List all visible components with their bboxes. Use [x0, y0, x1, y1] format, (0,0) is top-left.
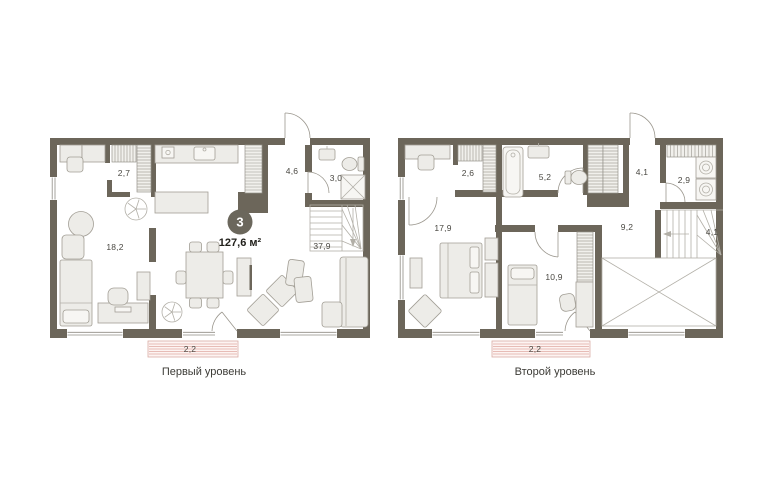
room-label-bedroom-l1: 18,2	[106, 242, 123, 252]
wardrobe-icon	[667, 145, 716, 157]
room-label-bedroom2-l2: 10,9	[545, 272, 562, 282]
toilet-icon	[342, 157, 364, 171]
room-label-hall-l2: 4,1	[636, 167, 648, 177]
bathroom-door-arc	[308, 172, 329, 193]
bed-icon	[508, 265, 537, 325]
bedroom-door-arc	[409, 197, 437, 225]
room-label-bathroom-l1: 3,0	[330, 173, 342, 183]
floor-plan-level-2	[395, 105, 730, 365]
dresser-icon	[410, 258, 422, 288]
level-2-drawing	[395, 105, 730, 365]
double-bed-icon	[440, 243, 482, 298]
balcony-door-arc	[212, 312, 237, 331]
kitchen-island-icon	[155, 192, 208, 213]
sofa-icon	[322, 257, 368, 327]
cabinet-icon	[137, 272, 150, 300]
void-cross-icon	[602, 258, 716, 326]
nightstand-icon	[485, 238, 498, 297]
entrance-door-arc	[630, 113, 655, 138]
entrance-door-arc	[285, 113, 310, 138]
wardrobe-icon	[588, 145, 603, 193]
wardrobe-icon	[137, 145, 151, 192]
level-1-caption: Первый уровень	[162, 366, 246, 378]
room-label-corridor-l2: 9,2	[621, 222, 633, 232]
room-label-stairs-l2: 4,1	[706, 227, 718, 237]
desk-icon	[559, 282, 593, 327]
pouf-icon	[69, 212, 94, 237]
unit-total-area: 127,6 м²	[219, 237, 261, 249]
room-label-hallway-l1: 4,6	[286, 166, 298, 176]
room-label-balcony-l1: 2,2	[184, 344, 196, 354]
shower-icon	[341, 175, 365, 199]
plant-icon	[125, 198, 147, 220]
wardrobe-icon	[458, 145, 482, 161]
room-label-laundry-l2: 2,9	[678, 175, 690, 185]
bathtub-icon	[503, 147, 523, 197]
room-label-balcony-l2: 2,2	[529, 344, 541, 354]
toilet-icon	[565, 171, 587, 185]
cabinet-icon	[405, 145, 450, 170]
floor-plan-page: 3 127,6 м² 2,7 4,6 3,0 18,2 37,9 2,2 2,6…	[0, 0, 770, 500]
room-label-bedroom-l2: 17,9	[434, 223, 451, 233]
dining-table-icon	[176, 242, 233, 308]
wardrobe-icon	[112, 145, 136, 162]
room-label-closet-l1: 2,7	[118, 168, 130, 178]
level-1-drawing	[45, 105, 375, 365]
armchair-icon	[408, 294, 442, 328]
floor-plan-level-1	[45, 105, 375, 365]
wardrobe-icon	[577, 232, 593, 282]
tv-console-icon	[237, 258, 252, 296]
room-label-closet-l2: 2,6	[462, 168, 474, 178]
level-2-caption: Второй уровень	[515, 366, 596, 378]
armchair-icon	[62, 235, 84, 259]
wardrobe-icon	[603, 145, 618, 193]
room-label-bathroom-l2: 5,2	[539, 172, 551, 182]
wardrobe-icon	[483, 145, 496, 192]
laundry-door-arc	[666, 183, 685, 202]
sink-icon	[319, 146, 335, 160]
bed-icon	[60, 260, 92, 326]
walls	[398, 138, 723, 338]
unit-rooms-badge: 3	[228, 210, 253, 235]
room-label-living-l1: 37,9	[313, 241, 330, 251]
plant-icon	[162, 302, 182, 322]
wardrobe-icon	[245, 145, 262, 193]
room-door-arc	[535, 232, 558, 257]
sink-icon	[528, 143, 549, 158]
washer-dryer-icon	[696, 157, 716, 200]
